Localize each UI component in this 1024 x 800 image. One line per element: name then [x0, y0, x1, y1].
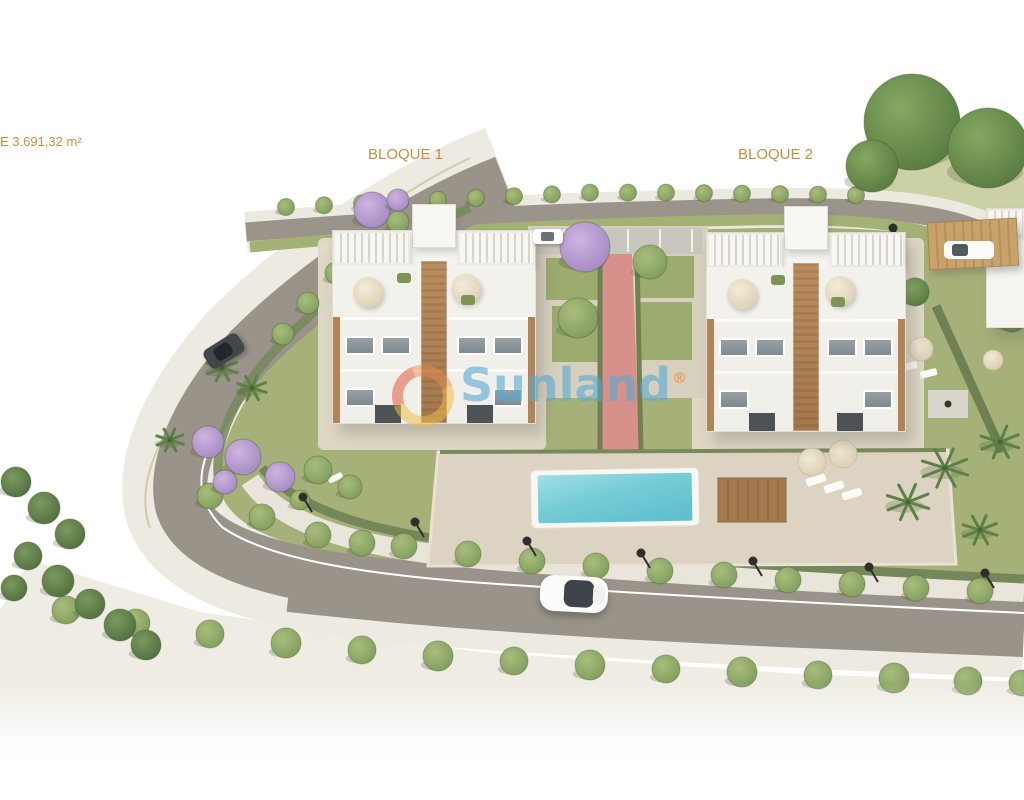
patio-recess	[467, 405, 493, 423]
pergola-icon	[830, 233, 905, 267]
window-icon	[827, 338, 857, 357]
avenue-tree	[275, 199, 295, 216]
wood-cladding	[333, 317, 340, 423]
white-car-driving	[539, 574, 609, 614]
umbrella-icon	[727, 279, 757, 309]
planter-icon	[771, 275, 785, 285]
umbrella-icon	[353, 277, 383, 307]
window-icon	[345, 388, 375, 407]
pine-tree	[0, 467, 31, 497]
window-icon	[493, 388, 523, 407]
pine-tree	[26, 492, 60, 524]
avenue-tree	[541, 186, 561, 203]
patio-pad	[928, 390, 968, 418]
window-icon	[863, 338, 893, 357]
wood-stair-core	[793, 263, 819, 431]
pine-tree	[12, 542, 42, 570]
pergola-icon	[707, 233, 782, 267]
avenue-tree	[313, 197, 333, 214]
white-car-carport	[944, 241, 994, 259]
street-tree	[498, 647, 528, 675]
swimming-pool	[531, 468, 700, 529]
window-icon	[345, 336, 375, 355]
patio-recess	[837, 413, 863, 431]
pergola-icon	[333, 231, 410, 265]
avenue-tree	[731, 185, 751, 202]
window-icon	[719, 338, 749, 357]
window-icon	[719, 390, 749, 409]
bloque-2-label: BLOQUE 2	[738, 146, 813, 163]
large-tree	[844, 140, 898, 192]
deck-hedge	[440, 450, 946, 452]
car-windshield	[563, 579, 594, 608]
car-windshield	[541, 232, 554, 241]
patio-recess	[749, 413, 775, 431]
white-car-parked	[533, 229, 563, 244]
plot-area-label: E 3.691,32 m²	[0, 134, 82, 149]
avenue-tree	[693, 185, 713, 202]
bloque-1-label: BLOQUE 1	[368, 146, 443, 163]
pine-tree	[53, 519, 85, 549]
patio-recess	[375, 405, 401, 423]
car-windshield	[212, 341, 235, 362]
avenue-tree	[617, 184, 637, 201]
roof-pergolas	[333, 231, 535, 265]
window-icon	[755, 338, 785, 357]
wood-cladding	[707, 319, 714, 431]
pine-tree	[0, 575, 27, 601]
window-icon	[381, 336, 411, 355]
planter-icon	[461, 295, 475, 305]
wooden-deck	[718, 478, 786, 522]
pergola-icon	[458, 231, 535, 265]
wood-cladding	[898, 319, 905, 431]
window-icon	[493, 336, 523, 355]
avenue-tree	[655, 184, 675, 201]
site-plan-render: E 3.691,32 m² BLOQUE 1 BLOQUE 2 Sunland …	[0, 0, 1024, 800]
wood-stair-core	[421, 261, 447, 423]
avenue-tree	[579, 184, 599, 201]
car-hood	[592, 584, 605, 606]
window-icon	[863, 390, 893, 409]
roof-pergolas	[707, 233, 905, 267]
building-bloque-1	[332, 230, 536, 424]
planter-icon	[397, 273, 411, 283]
wood-cladding	[528, 317, 535, 423]
window-icon	[457, 336, 487, 355]
building-bloque-2	[706, 232, 906, 432]
planter-icon	[831, 297, 845, 307]
car-windshield	[952, 244, 968, 256]
